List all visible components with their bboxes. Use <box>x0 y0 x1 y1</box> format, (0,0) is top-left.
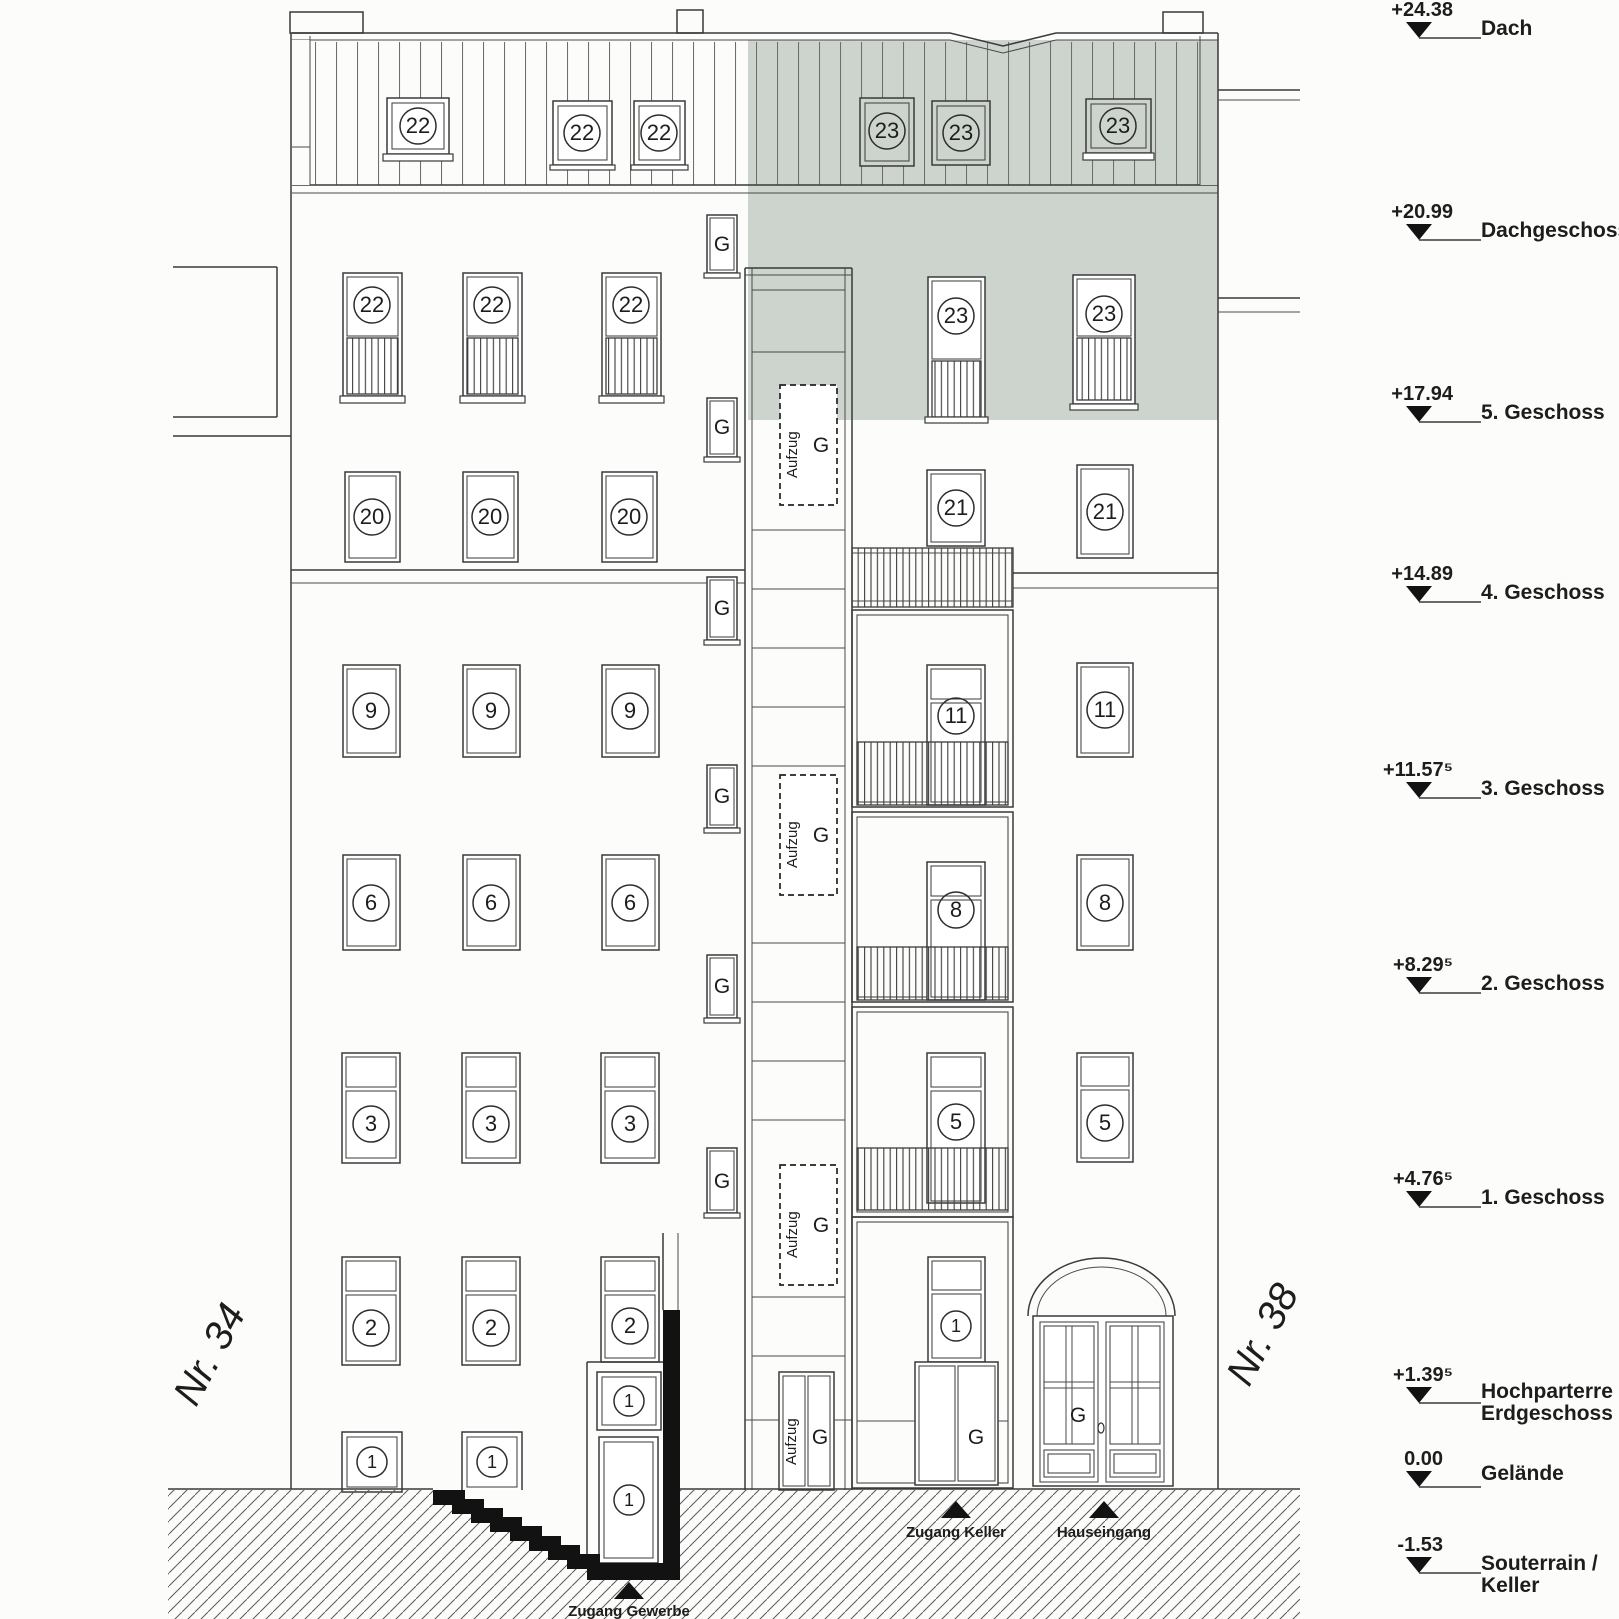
unit-label: 8 <box>1099 890 1111 915</box>
unit-label: 22 <box>619 292 643 317</box>
balcony-railing-top <box>852 548 1013 607</box>
g-label: G <box>813 824 829 847</box>
unit-label: 3 <box>624 1111 636 1136</box>
elevator-label: Aufzug <box>784 1211 801 1258</box>
elevation-drawing-canvas: 22 22 22 23 23 23 <box>0 0 1619 1619</box>
unit-label: 1 <box>487 1452 497 1472</box>
unit-label: 22 <box>406 113 430 138</box>
g-label: G <box>1070 1404 1086 1427</box>
window-22-1: 22 <box>340 273 405 403</box>
window-6-2: 6 <box>463 855 520 950</box>
unit-label: 23 <box>949 120 973 145</box>
commercial-window-1: 1 <box>597 1372 661 1430</box>
unit-label: 11 <box>1094 697 1117 722</box>
window-9-2: 9 <box>463 665 520 757</box>
entry-cellar-label: Zugang Keller <box>906 1524 1006 1541</box>
elevator-label: Aufzug <box>783 1418 800 1465</box>
window-23-1: 23 <box>925 277 988 423</box>
window-20-3: 20 <box>602 472 657 562</box>
svg-text:+14.89: +14.89 <box>1391 563 1453 585</box>
svg-text:Souterrain /: Souterrain / <box>1481 1552 1598 1575</box>
svg-text:1. Geschoss: 1. Geschoss <box>1481 1186 1605 1209</box>
g-window-3: G <box>704 577 740 645</box>
unit-label: 9 <box>485 698 497 723</box>
window-20-1: 20 <box>345 472 400 562</box>
roof-dormer-23-a: 23 <box>860 98 914 166</box>
svg-text:3. Geschoss: 3. Geschoss <box>1481 777 1605 800</box>
svg-text:+20.99: +20.99 <box>1391 201 1453 223</box>
window-22-3: 22 <box>599 273 664 403</box>
unit-label: 23 <box>1092 301 1116 326</box>
svg-text:Dach: Dach <box>1481 17 1532 40</box>
entry-house-label: Hauseingang <box>1057 1524 1151 1541</box>
roof-dormer-22-c: 22 <box>631 101 688 170</box>
window-6-3: 6 <box>602 855 659 950</box>
g-window-6: G <box>704 1148 740 1218</box>
g-label: G <box>714 597 730 620</box>
unit-label: 23 <box>944 303 968 328</box>
svg-text:+1.39⁵: +1.39⁵ <box>1393 1364 1453 1386</box>
svg-text:Dachgeschoss: Dachgeschoss <box>1481 219 1619 242</box>
window-20-2: 20 <box>463 472 518 562</box>
facade-elevation-svg: 22 22 22 23 23 23 <box>0 0 1619 1619</box>
window-21-1: 21 <box>927 470 985 546</box>
svg-text:Erdgeschoss: Erdgeschoss <box>1481 1402 1613 1425</box>
svg-text:+17.94: +17.94 <box>1391 383 1454 405</box>
g-window-2: G <box>704 398 740 462</box>
elevator-box-upper: Aufzug G <box>780 385 837 505</box>
unit-label: 21 <box>1093 499 1117 524</box>
g-label: G <box>813 1214 829 1237</box>
window-1-cellar: 1 <box>928 1257 985 1362</box>
entry-commercial-label: Zugang Gewerbe <box>568 1603 690 1619</box>
svg-text:+8.29⁵: +8.29⁵ <box>1393 954 1453 976</box>
window-21-2: 21 <box>1077 465 1133 558</box>
unit-label: 8 <box>950 897 962 922</box>
window-9-1: 9 <box>343 665 400 757</box>
window-3-2: 3 <box>462 1053 520 1163</box>
g-window-1: G <box>704 215 740 278</box>
elevator-label: Aufzug <box>784 821 801 868</box>
unit-label: 2 <box>365 1315 377 1340</box>
window-2-2: 2 <box>462 1257 520 1365</box>
unit-label: 1 <box>624 1391 634 1411</box>
g-label: G <box>714 975 730 998</box>
roof-dormer-23-b: 23 <box>932 101 990 165</box>
g-label: G <box>968 1426 984 1449</box>
unit-label: 5 <box>1099 1110 1111 1135</box>
svg-text:+11.57⁵: +11.57⁵ <box>1383 759 1453 781</box>
svg-text:4. Geschoss: 4. Geschoss <box>1481 581 1605 604</box>
window-3-1: 3 <box>342 1053 400 1163</box>
ground <box>168 1489 1300 1619</box>
svg-text:-1.53: -1.53 <box>1397 1534 1443 1556</box>
roof-dormer-23-c: 23 <box>1083 99 1154 160</box>
svg-text:Keller: Keller <box>1481 1574 1539 1597</box>
unit-label: 9 <box>624 698 636 723</box>
svg-text:2. Geschoss: 2. Geschoss <box>1481 972 1605 995</box>
unit-label: 2 <box>485 1315 497 1340</box>
window-1-small-a: 1 <box>342 1432 402 1492</box>
g-label: G <box>714 233 730 256</box>
unit-label: 22 <box>570 120 594 145</box>
g-window-4: G <box>704 765 740 833</box>
svg-text:Gelände: Gelände <box>1481 1462 1564 1485</box>
window-5-2: 5 <box>1077 1053 1133 1162</box>
elevator-box-middle: Aufzug G <box>780 775 837 895</box>
unit-label: 6 <box>624 890 636 915</box>
window-11-2: 11 <box>1077 663 1133 757</box>
elevator-label: Aufzug <box>784 431 801 478</box>
unit-label: 22 <box>647 120 671 145</box>
window-23-2: 23 <box>1070 275 1138 410</box>
unit-label: 6 <box>365 890 377 915</box>
unit-label: 3 <box>485 1111 497 1136</box>
unit-label: 6 <box>485 890 497 915</box>
unit-label: 11 <box>945 703 968 728</box>
unit-label: 20 <box>360 504 384 529</box>
roof-dormer-22-b: 22 <box>550 101 615 170</box>
g-label: G <box>813 434 829 457</box>
window-6-1: 6 <box>343 855 400 950</box>
unit-label: 23 <box>875 118 899 143</box>
svg-text:0.00: 0.00 <box>1404 1448 1443 1470</box>
window-2-3: 2 <box>601 1257 659 1362</box>
svg-text:Hochparterre /: Hochparterre / <box>1481 1380 1619 1403</box>
unit-label: 20 <box>617 504 641 529</box>
g-label: G <box>714 785 730 808</box>
unit-label: 22 <box>480 292 504 317</box>
cut-floor <box>587 1563 680 1580</box>
g-window-5: G <box>704 955 740 1023</box>
window-9-3: 9 <box>602 665 659 757</box>
g-label: G <box>714 416 730 439</box>
unit-label: 5 <box>950 1109 962 1134</box>
svg-text:+4.76⁵: +4.76⁵ <box>1393 1168 1453 1190</box>
unit-label: 20 <box>478 504 502 529</box>
unit-label: 21 <box>944 495 968 520</box>
cut-wall-right <box>663 1310 680 1580</box>
window-1-small-b: 1 <box>462 1432 522 1492</box>
unit-label: 9 <box>365 698 377 723</box>
svg-text:5. Geschoss: 5. Geschoss <box>1481 401 1605 424</box>
g-label: G <box>812 1426 828 1449</box>
unit-label: 22 <box>360 292 384 317</box>
earth-hatch <box>168 1490 1300 1619</box>
g-label: G <box>714 1170 730 1193</box>
unit-label: 2 <box>624 1313 636 1338</box>
window-22-2: 22 <box>460 273 525 403</box>
commercial-door-1: 1 <box>599 1437 658 1563</box>
roof-dormer-22-a: 22 <box>383 98 453 161</box>
unit-label: 3 <box>365 1111 377 1136</box>
unit-label: 1 <box>951 1316 961 1336</box>
window-3-3: 3 <box>601 1053 659 1163</box>
svg-text:+24.38: +24.38 <box>1391 0 1453 21</box>
unit-label: 1 <box>367 1452 377 1472</box>
unit-label: 1 <box>624 1490 634 1510</box>
elevator-box-lower: Aufzug G <box>780 1165 837 1285</box>
unit-label: 23 <box>1106 113 1130 138</box>
window-8-2: 8 <box>1077 855 1133 950</box>
window-2-1: 2 <box>342 1257 400 1365</box>
